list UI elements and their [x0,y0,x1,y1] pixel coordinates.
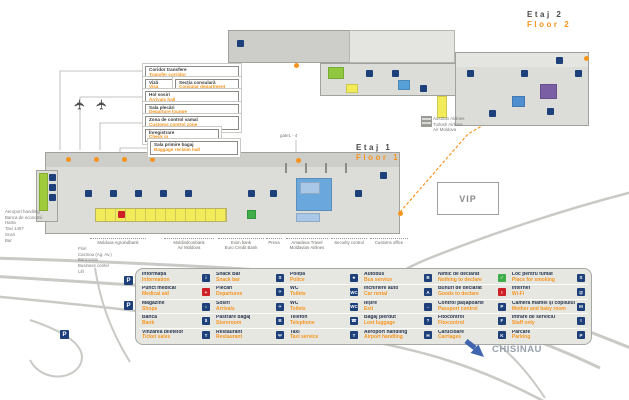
facility-icon [355,190,362,197]
gate-marker [66,157,71,162]
legend-column: Loc pentru fumatPlace for smokingS Inter… [509,271,588,342]
fitocontrol-icon: F [498,317,506,325]
floor2-purple-room [540,84,557,99]
taxi-icon: T [350,331,358,339]
facility-icon [248,190,255,197]
legend-label-en: Bus service [364,278,392,284]
legend-item: Loc pentru fumatPlace for smokingS [509,271,588,284]
airport-handling-icon: H [424,331,432,339]
medical-aid-icon: + [202,288,210,296]
shops-notes-list: Flori Cazinou (Ag. Av.) Bancomat Busines… [78,246,112,275]
legend-label-en: Nothing to declare [438,278,482,284]
legend-item: FitocontrolFitocontrolF [435,313,509,327]
storeroom-icon: B [276,317,284,325]
facility-icon [49,184,56,191]
callout-label-en: Baggage reclaim hall [154,148,234,153]
legend-item: WCToiletsWC [287,299,361,313]
gate-range-label: gate1 - 4 [280,133,297,139]
stairs-icon [421,116,432,127]
tenant-name: Customs office [370,240,408,245]
callout-leader-line [80,97,145,150]
facility-icon [135,190,142,197]
floor2-label-en: Floor 2 [527,20,571,30]
facility-icon [366,70,373,77]
legend-label-en: Ticket sales [142,335,183,341]
tenant-name: Moldova Agroindbank [90,240,146,245]
legend-item: Pastrare bagajStoreroomB [213,313,287,327]
legend-label-en: Carriages [438,335,464,341]
facility-icon [489,110,496,117]
legend-label-en: Storeroom [216,321,250,327]
gate-pier [285,163,287,173]
floor2-yellow-room [346,84,358,93]
facility-icon [556,57,563,64]
gate-pier [325,163,327,173]
city-arrow-icon [462,338,488,360]
callout-baggage-reclaim: Sala primire bagaj Baggage reclaim hall [150,141,238,155]
goods-to-declare-icon: ! [498,288,506,296]
tenant-label: Exim bank Euro Credit Bank [218,238,264,250]
legend-item: Control pașapoartePassport controlP [435,299,509,313]
facility-icon [420,85,427,92]
floor2-label-ro: Etaj 2 [527,10,571,20]
gate-marker [94,157,99,162]
parking-icon: P [124,301,133,310]
floor1-green-shops [39,173,48,211]
legend-item: IeșireExit→ [361,299,435,313]
legend-label-en: Medical aid [142,292,176,298]
vip-lounge: VIP [437,182,499,215]
ticket-sales-icon: T [202,331,210,339]
floor2-yellow-strip [437,96,447,118]
legend-label-en: Bank [142,321,157,327]
legend-item: Închiriere autoCar rentalA [361,284,435,298]
facility-icon [185,190,192,197]
legend-label-en: Airport handling [364,335,407,341]
toilets-icon: WC [350,288,358,296]
legend-label-en: Lost luggage [364,321,396,327]
legend-item: WCToiletsWC [287,284,361,298]
legend-item: RestaurantRestaurantΨ [213,328,287,342]
legend-label-en: Shops [142,307,165,313]
legend-item: Snack BarSnack barS [213,271,287,284]
legend-column: Nimic de declaratNothing to declare✓ Bun… [435,271,509,342]
tenant-label: Moldindconbank Air Moldova [164,238,214,250]
legend-label-en: Toilets [290,292,306,298]
floor2-hall-east [349,30,455,63]
legend-item: Intrare de serviciuStaff onlyI [509,313,588,327]
gate-marker [150,157,155,162]
tenant-label: Moldova Agroindbank [90,238,146,245]
legend-item: BancaBank$ [139,313,213,327]
gate-pier [305,163,307,173]
information-icon: i [202,274,210,282]
facility-icon [575,70,582,77]
airline-name: Austrian Airlines [433,116,464,122]
floor2-hall-west [228,30,350,63]
callout-leader-line [100,123,145,150]
bank-icon: $ [202,317,210,325]
legend-label-en: Place for smoking [512,278,555,284]
legend-label-en: Goods to declare [438,292,482,298]
legend-panel: InformațiaInformationi Punct medicalMedi… [135,268,592,345]
note: Lift [78,269,112,275]
legend-label-en: Snack bar [216,278,240,284]
city-label: CHISINAU [492,344,542,355]
shops-icon: ⌂ [202,303,210,311]
tenant-name: Euro Credit Bank [218,245,264,250]
smoking-area-icon: S [577,274,585,282]
floor2-corridor [456,53,588,67]
vip-label: VIP [459,194,477,204]
arrivals-icon: ✈ [276,303,284,311]
legend-column: Snack BarSnack barS PlecăriDepartures✈ S… [213,271,287,342]
toilets-icon: WC [350,303,358,311]
legend-item: Bunuri de declaratGoods to declare! [435,284,509,298]
checkin-desks [95,208,227,222]
legend-item: InternetWi-Fi@ [509,284,588,298]
passport-control-icon: P [498,303,506,311]
legend-label-en: Police [290,278,305,284]
floor2-blue-room-2 [512,96,525,107]
airplane-icon: ✈ [93,99,110,111]
floor1-label-en: Floor 1 [356,153,400,163]
smoking-point-marker [294,63,299,68]
facility-icon [380,172,387,179]
medical-aid-icon [118,211,125,218]
floor1-blue-inner [300,182,320,194]
legend-label-en: Taxi service [290,335,318,341]
legend-item: Camera mamei și copiluluiMother and baby… [509,299,588,313]
medical-point [247,210,256,219]
legend-label-en: Telephone [290,321,315,327]
lost-luggage-icon: ? [424,317,432,325]
mother-baby-room-icon: M [577,303,585,311]
legend-label-en: Departures [216,292,242,298]
facility-icon [392,70,399,77]
legend-label-en: Mother and baby room [512,307,575,313]
legend-item: TelefonTelephone☎ [287,313,361,327]
callout-label-en: Visa [149,85,173,90]
floor2-green-room [328,67,344,79]
facility-icon [110,190,117,197]
facility-icon [270,190,277,197]
parking-icon: P [577,331,585,339]
tenant-label: Customs office [370,238,408,245]
callout-label-en: Consular department [179,85,235,90]
legend-label-en: Car rental [364,292,398,298]
departures-icon: ✈ [276,288,284,296]
restaurant-icon: Ψ [276,331,284,339]
gate-marker [122,157,127,162]
exit-icon: → [424,303,432,311]
bus-icon: B [424,274,432,282]
floor1-label-ro: Etaj 1 [356,143,400,153]
legend-item: Bagaj pierdutLost luggage? [361,313,435,327]
legend-label-en: Toilets [290,307,306,313]
tenant-label: Amadeus Travel Moldavian Airlines [286,238,328,250]
airline-name: Air Moldova [433,127,464,133]
legend-column: AutobusBus serviceB Închiriere autoCar r… [361,271,435,342]
legend-item: MagazineShops⌂ [139,299,213,313]
legend-label-en: Passport control [438,307,484,313]
legend-label-en: Restaurant [216,335,242,341]
floor1-title: Etaj 1 Floor 1 [356,143,400,162]
wifi-icon: @ [577,288,585,296]
callout-leader-line [60,71,145,150]
legend-label-en: Staff only [512,321,555,327]
facility-icon [49,194,56,201]
floor2-blue-room [398,80,410,90]
callout-label-en: Customs control zone [149,123,235,128]
note: Aeroport handling [5,209,42,215]
city-direction: CHISINAU [462,338,542,360]
legend-item: Punct medicalMedical aid+ [139,284,213,298]
parking-icon: P [60,330,69,339]
legend-item: PolițiaPolice★ [287,271,361,284]
legend-item: Vinzarea biletelorTicket salesT [139,328,213,342]
legend-column: PolițiaPolice★ WCToiletsWC WCToiletsWC T… [287,271,361,342]
facility-icon [521,70,528,77]
tenant-name: Air Moldova [164,245,214,250]
facility-icon [49,174,56,181]
airlines-note: Austrian Airlines Turkish Airlines Air M… [433,116,464,133]
car-rental-icon: A [424,288,432,296]
facility-icon [467,70,474,77]
callout-label-en: Departure lounge [149,110,235,115]
note: Bar [5,238,42,244]
legend-item: TaxiTaxi serviceT [287,328,361,342]
telephone-icon: ☎ [350,317,358,325]
snack-bar-icon: S [276,274,284,282]
legend-item: AutobusBus serviceB [361,271,435,284]
tenant-name: Moldavian Airlines [286,245,328,250]
legend-label-en: Information [142,278,170,284]
airplane-icon: ✈ [71,99,88,111]
legend-item: Aeroport handlingAirport handlingH [361,328,435,342]
callout-label-en: Transfer corridor [149,73,235,78]
nothing-to-declare-icon: ✓ [498,274,506,282]
airport-terminal-map: Etaj 2 Floor 2 ✈ ✈ Etaj 1 Floor 1 gate1 … [0,0,629,400]
legend-label-en: Wi-Fi [512,292,530,298]
gate-pier [345,163,347,173]
tenant-name: Security control [331,240,367,245]
floor2-title: Etaj 2 Floor 2 [527,10,571,29]
road [30,320,82,376]
facility-icon [237,40,244,47]
legend-label-en: Exit [364,307,377,313]
police-icon: ★ [350,274,358,282]
parking-icon: P [124,276,133,285]
transfer-route-marker [398,211,403,216]
smoking-point-marker [584,56,589,61]
legend-item: Nimic de declaratNothing to declare✓ [435,271,509,284]
facility-icon [85,190,92,197]
left-notes-list: Aeroport handling Banca de economii Hart… [5,209,42,243]
legend-item: PlecăriDepartures✈ [213,284,287,298]
facility-icon [160,190,167,197]
tenant-label: Security control [331,238,367,245]
floor1-blue-exit [296,213,320,222]
legend-item: SosiriArrivals✈ [213,299,287,313]
gate-marker [296,158,301,163]
tenant-name: Presa [266,240,282,245]
callout-label-en: Arrivals hall [149,98,235,103]
facility-icon [547,108,554,115]
legend-column: InformațiaInformationi Punct medicalMedi… [139,271,213,342]
callout-label-en: Check in [149,135,215,140]
staff-only-icon: I [577,317,585,325]
tenant-label: Presa [266,238,282,245]
legend-item: InformațiaInformationi [139,271,213,284]
legend-label-en: Arrivals [216,307,235,313]
legend-label-en: Fitocontrol [438,321,464,327]
